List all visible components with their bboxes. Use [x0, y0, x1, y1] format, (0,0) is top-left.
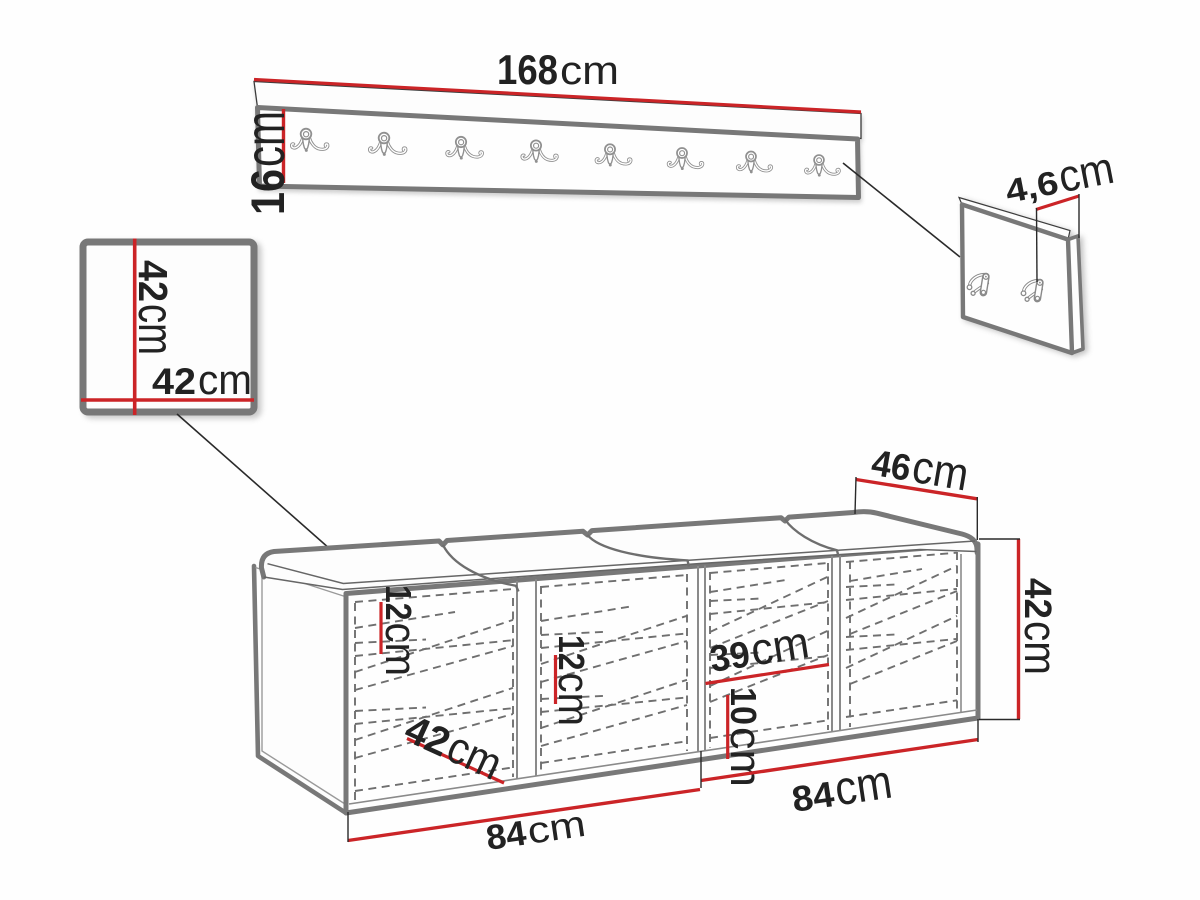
- svg-text:10: 10: [723, 687, 764, 725]
- svg-text:cm: cm: [1054, 142, 1118, 203]
- svg-text:39: 39: [707, 633, 753, 680]
- svg-text:46: 46: [869, 442, 914, 489]
- svg-text:cm: cm: [1015, 621, 1066, 675]
- svg-text:84: 84: [484, 813, 530, 857]
- svg-text:cm: cm: [831, 756, 895, 817]
- svg-text:168: 168: [497, 46, 558, 93]
- svg-text:cm: cm: [128, 304, 184, 355]
- svg-text:cm: cm: [549, 673, 598, 727]
- svg-text:cm: cm: [560, 49, 619, 93]
- svg-text:42: 42: [152, 361, 196, 402]
- svg-text:16: 16: [241, 169, 294, 215]
- svg-text:cm: cm: [747, 616, 812, 675]
- svg-text:42: 42: [1016, 578, 1058, 619]
- svg-text:cm: cm: [909, 440, 973, 501]
- svg-text:12: 12: [551, 635, 592, 671]
- svg-text:cm: cm: [233, 111, 296, 167]
- svg-text:cm: cm: [198, 356, 252, 403]
- svg-text:42: 42: [130, 260, 176, 302]
- svg-text:cm: cm: [525, 803, 588, 852]
- svg-text:cm: cm: [376, 623, 425, 677]
- svg-text:84: 84: [789, 773, 837, 820]
- svg-text:12: 12: [378, 585, 419, 621]
